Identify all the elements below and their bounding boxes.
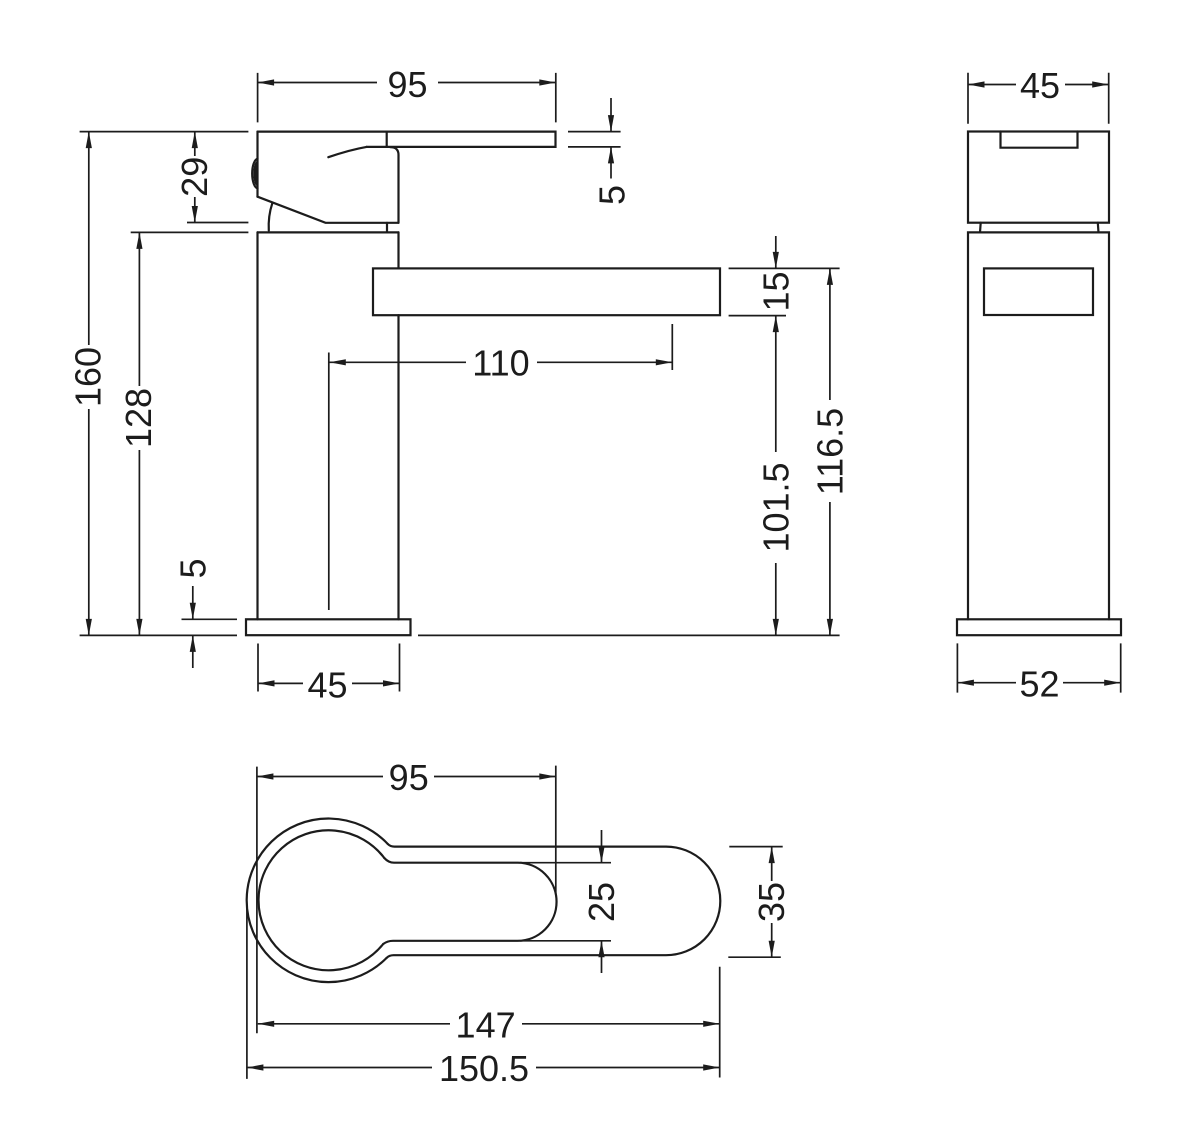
svg-text:95: 95 <box>389 757 429 798</box>
svg-text:101.5: 101.5 <box>755 462 796 552</box>
svg-text:95: 95 <box>387 64 427 105</box>
svg-text:160: 160 <box>67 347 108 407</box>
svg-text:15: 15 <box>755 271 796 311</box>
svg-text:45: 45 <box>1020 65 1060 106</box>
svg-text:116.5: 116.5 <box>809 408 850 495</box>
svg-text:45: 45 <box>307 665 347 706</box>
svg-text:128: 128 <box>118 388 159 448</box>
svg-text:52: 52 <box>1019 664 1059 705</box>
svg-text:150.5: 150.5 <box>439 1048 529 1089</box>
svg-text:29: 29 <box>174 157 215 197</box>
svg-text:110: 110 <box>472 343 529 384</box>
svg-text:25: 25 <box>581 882 622 922</box>
svg-text:35: 35 <box>751 882 792 922</box>
svg-text:5: 5 <box>172 558 213 578</box>
svg-text:5: 5 <box>592 185 633 205</box>
svg-text:147: 147 <box>456 1004 516 1045</box>
